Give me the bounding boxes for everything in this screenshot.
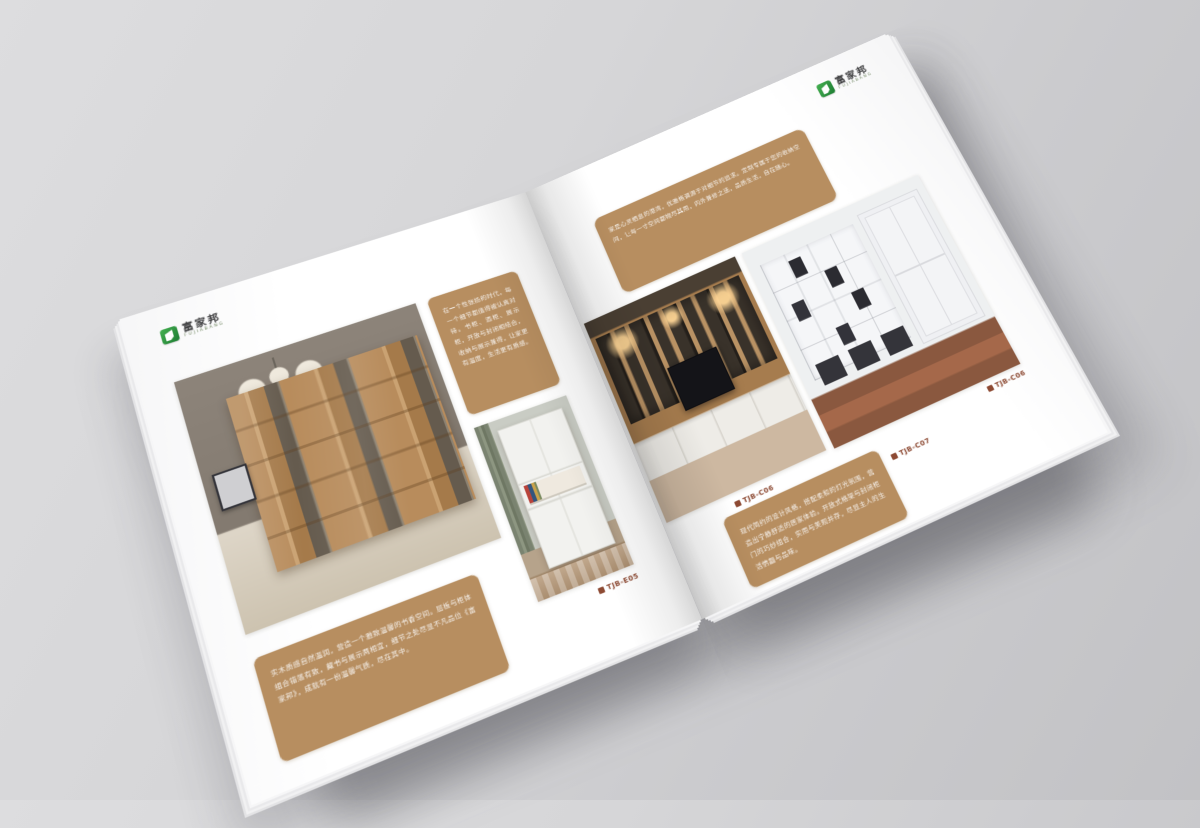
brand-logo-text: 富家邦 FUJIABANG — [181, 311, 225, 338]
white-wardrobe — [497, 408, 615, 569]
product-code-text: TJB-C07 — [898, 436, 932, 457]
mockup-stage: 富家邦 FUJIABANG 在一个性张扬的时代，每一个细节都值得被认真对待。书柜… — [0, 0, 1200, 800]
product-code-text: TJB-E05 — [606, 572, 640, 592]
brochure-spread: 富家邦 FUJIABANG 在一个性张扬的时代，每一个细节都值得被认真对待。书柜… — [135, 58, 1098, 810]
brand-mark-icon — [890, 452, 898, 460]
brand-mark-icon — [734, 500, 742, 508]
brand-logo: 富家邦 FUJIABANG — [159, 311, 225, 345]
brand-logo-icon — [159, 326, 180, 346]
brand-logo-text: 富家邦 FUJIABANG — [834, 63, 874, 90]
brand-mark-icon — [598, 586, 606, 594]
brand-mark-icon — [986, 385, 994, 393]
photo-white-wardrobe — [474, 395, 634, 602]
brand-logo: 富家邦 FUJIABANG — [816, 63, 874, 98]
brand-logo-icon — [816, 80, 836, 98]
